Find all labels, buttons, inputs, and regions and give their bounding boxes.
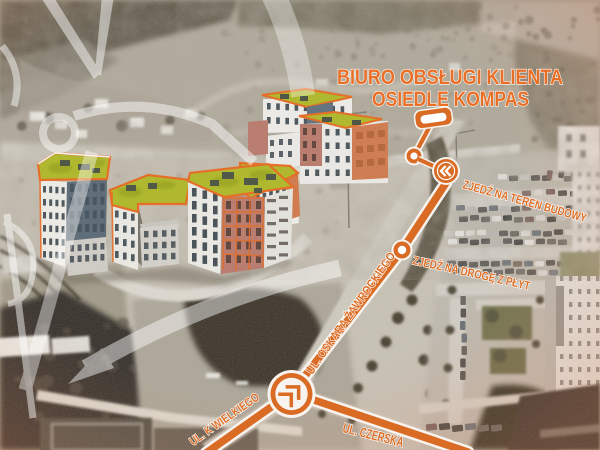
svg-text:BIURO OBSŁUGI KLIENTA: BIURO OBSŁUGI KLIENTA bbox=[337, 66, 563, 89]
svg-text:OSIEDLE KOMPAS: OSIEDLE KOMPAS bbox=[372, 88, 529, 111]
